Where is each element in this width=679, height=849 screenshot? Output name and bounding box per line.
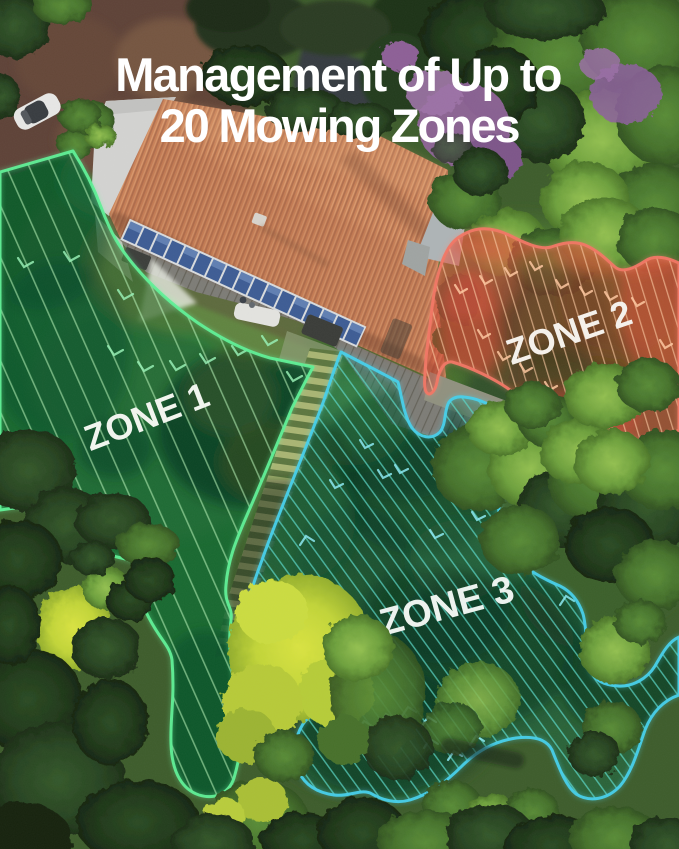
svg-text:20 Mowing Zones: 20 Mowing Zones	[160, 99, 520, 152]
svg-text:Management of Up to: Management of Up to	[115, 48, 561, 101]
